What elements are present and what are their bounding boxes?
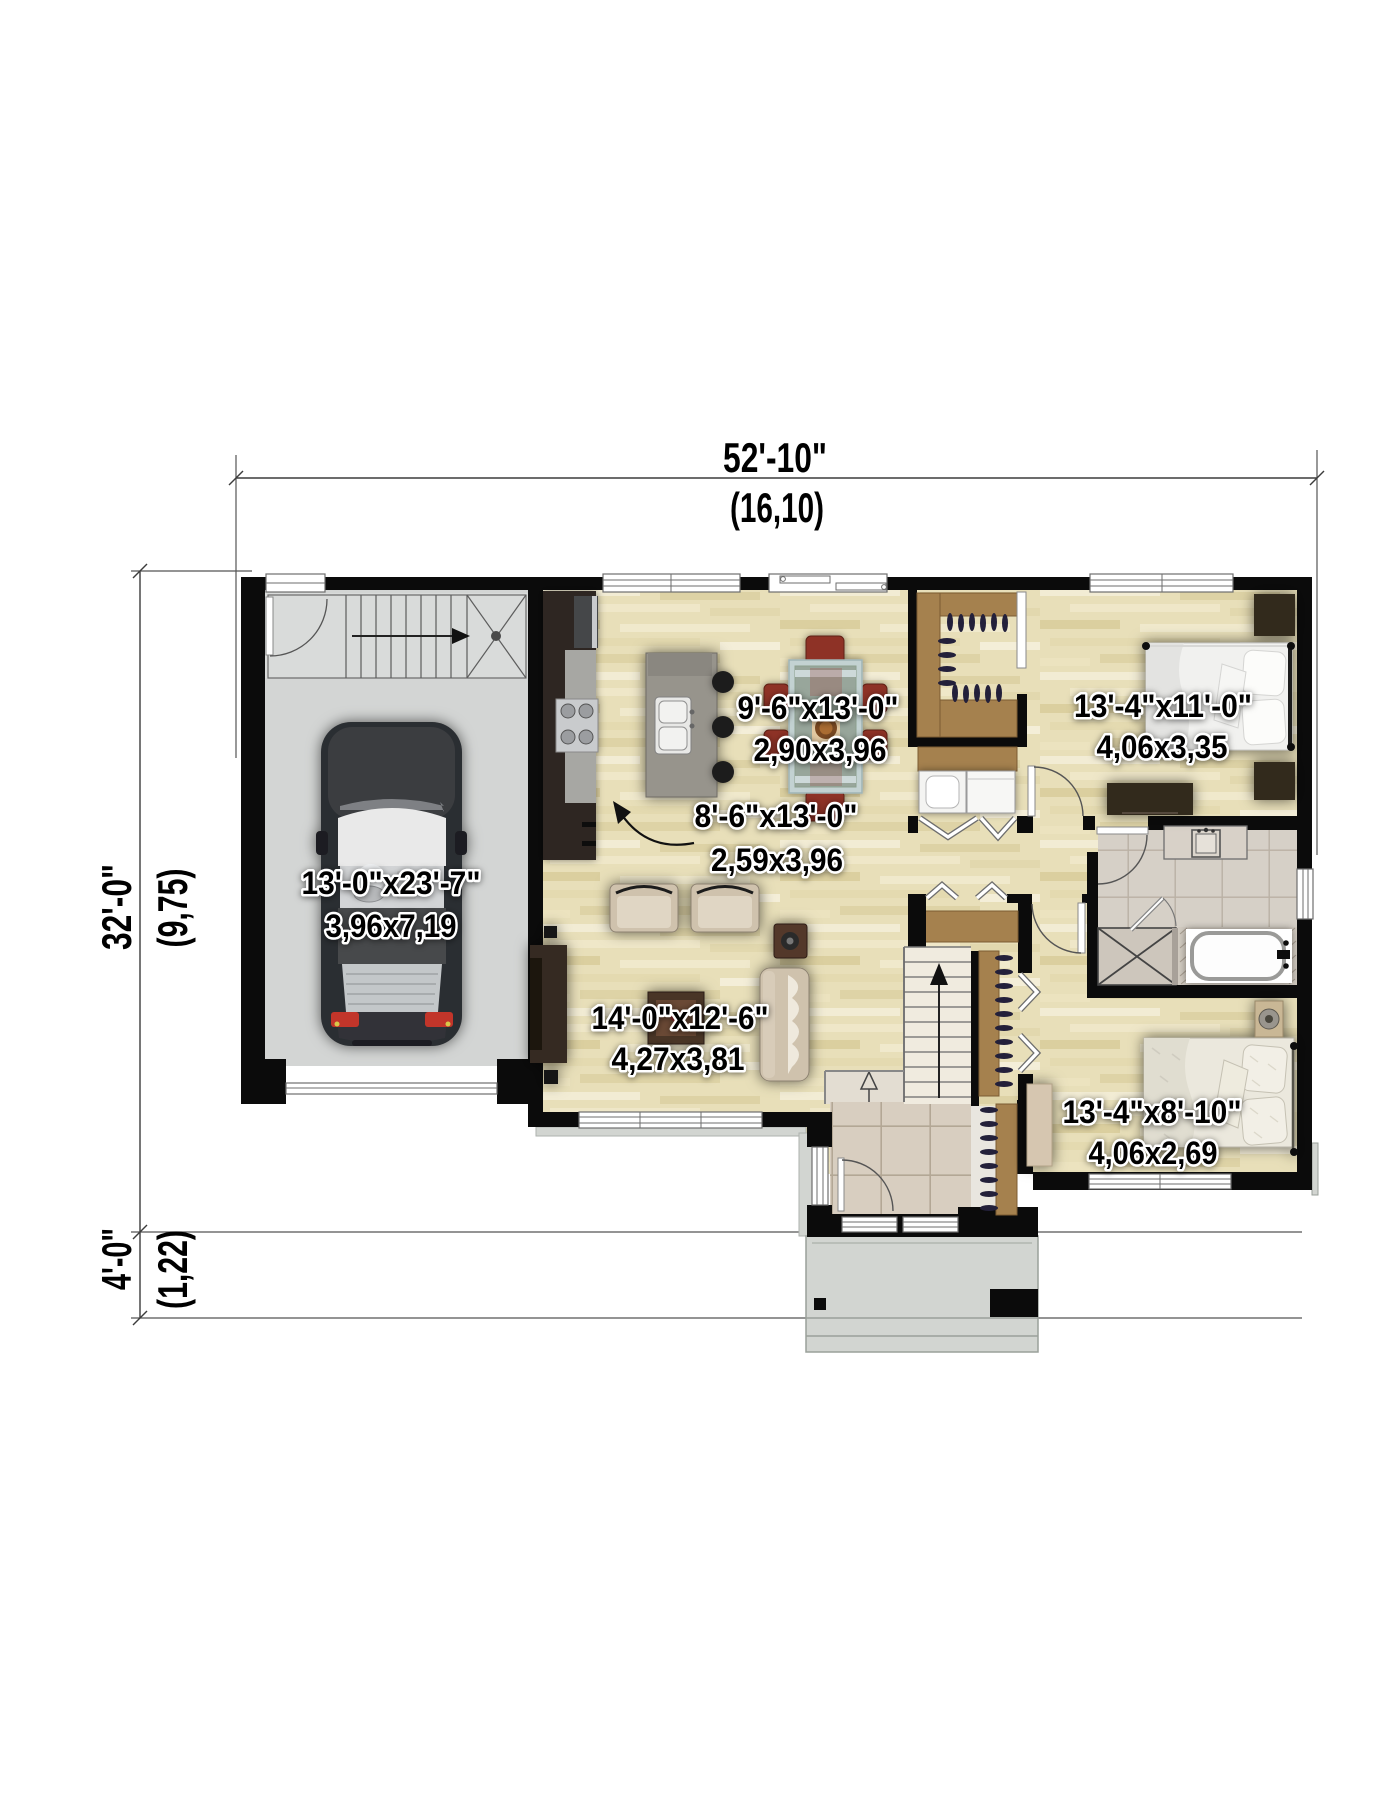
- svg-text:14'-0"x12'-6": 14'-0"x12'-6": [592, 1000, 769, 1036]
- svg-text:2,90x3,96: 2,90x3,96: [754, 732, 887, 768]
- svg-text:8'-6"x13'-0": 8'-6"x13'-0": [695, 798, 858, 834]
- svg-text:4,27x3,81: 4,27x3,81: [612, 1041, 745, 1077]
- svg-text:9'-6"x13'-0": 9'-6"x13'-0": [738, 690, 899, 726]
- svg-text:2,59x3,96: 2,59x3,96: [711, 842, 843, 878]
- svg-text:52'-10": 52'-10": [723, 434, 827, 481]
- svg-text:32'-0": 32'-0": [93, 864, 140, 950]
- svg-text:(1,22): (1,22): [149, 1230, 196, 1309]
- svg-text:3,96x7,19: 3,96x7,19: [326, 908, 457, 944]
- svg-text:13'-0"x23'-7": 13'-0"x23'-7": [302, 865, 481, 901]
- svg-text:(16,10): (16,10): [730, 484, 824, 531]
- svg-text:13'-4"x11'-0": 13'-4"x11'-0": [1074, 688, 1252, 724]
- svg-text:13'-4"x8'-10": 13'-4"x8'-10": [1063, 1094, 1242, 1130]
- svg-text:4,06x2,69: 4,06x2,69: [1089, 1135, 1218, 1171]
- svg-text:4,06x3,35: 4,06x3,35: [1097, 729, 1228, 765]
- svg-text:4'-0": 4'-0": [93, 1228, 140, 1290]
- svg-text:(9,75): (9,75): [149, 869, 196, 948]
